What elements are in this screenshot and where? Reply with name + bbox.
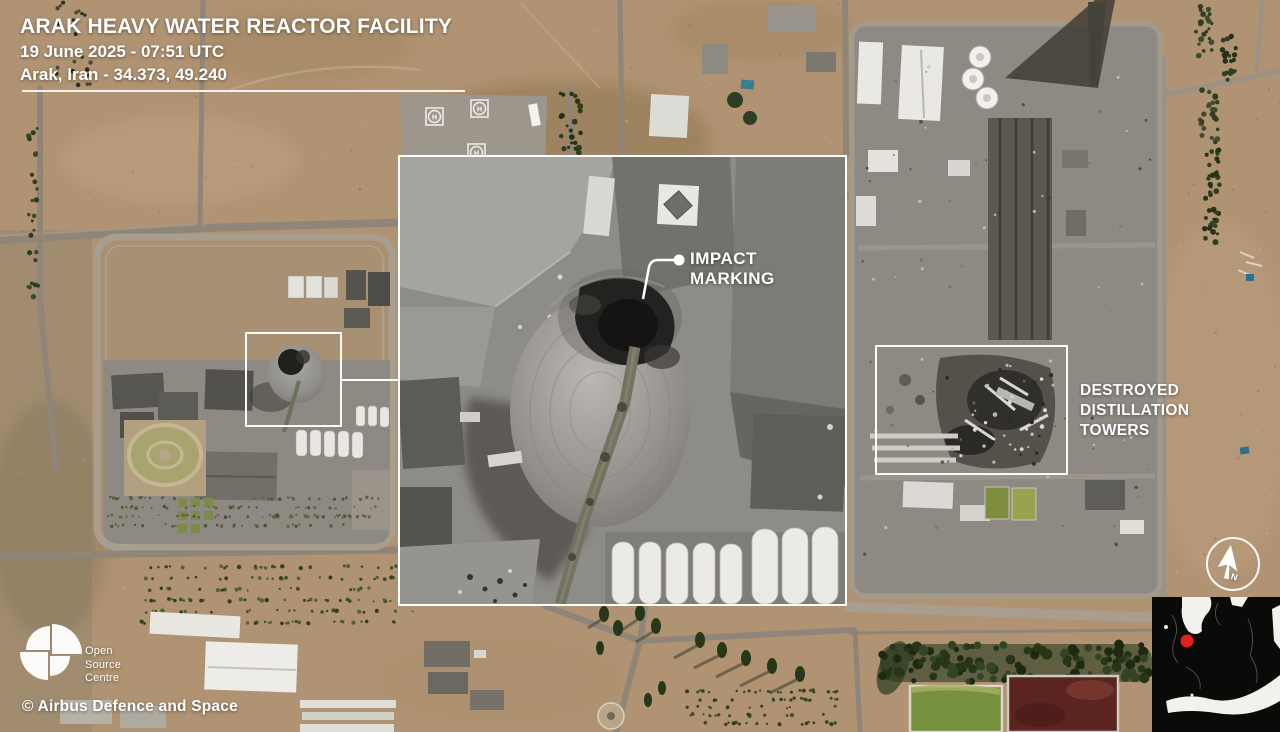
open-source-centre-wordmark: Open Source Centre: [85, 645, 121, 686]
capture-datetime: 19 June 2025 - 07:51 UTC: [20, 40, 452, 63]
blue-roof-structure: [741, 79, 755, 89]
title-divider-line: [22, 90, 465, 92]
locator-map: [1152, 597, 1280, 732]
location-coordinates: Arak, Iran - 34.373, 49.240: [20, 63, 452, 86]
destroyed-towers-label: DESTROYED DISTILLATION TOWERS: [1080, 381, 1189, 441]
location-marker-dot: [1181, 635, 1194, 648]
imagery-credit: © Airbus Defence and Space: [22, 698, 238, 716]
svg-text:H: H: [477, 107, 482, 114]
inset-silos: [605, 527, 845, 604]
callout-connector-line: [342, 379, 398, 381]
industrial-complex: [852, 0, 1160, 596]
inset-satellite-closeup: [400, 157, 845, 604]
annotated-satellite-image: H H H: [0, 0, 1280, 732]
reactor-callout-box: [245, 332, 342, 427]
title-block: ARAK HEAVY WATER REACTOR FACILITY 19 Jun…: [20, 14, 452, 86]
page-title: ARAK HEAVY WATER REACTOR FACILITY: [20, 14, 452, 40]
blue-structure: [1240, 446, 1250, 454]
destroyed-towers-callout-box: [875, 345, 1068, 475]
north-indicator: N: [1206, 537, 1260, 591]
blue-structure: [1246, 274, 1254, 281]
open-source-centre-logo-icon: [20, 624, 82, 690]
svg-text:H: H: [432, 115, 437, 122]
locator-map-graphic: [1152, 597, 1280, 732]
impact-marking-label: IMPACT MARKING: [690, 249, 845, 289]
zoom-inset-panel: IMPACT MARKING: [398, 155, 847, 606]
